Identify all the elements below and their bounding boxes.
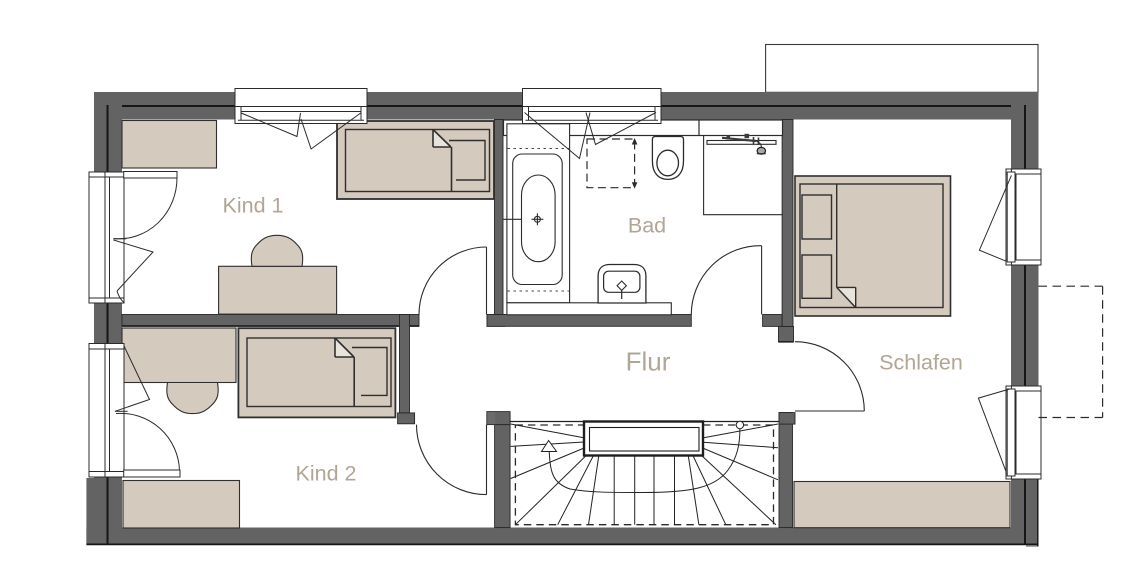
svg-text:Kind 2: Kind 2 bbox=[296, 462, 357, 486]
svg-text:Kind 1: Kind 1 bbox=[223, 194, 284, 218]
svg-text:Flur: Flur bbox=[626, 347, 671, 377]
svg-text:Bad: Bad bbox=[628, 214, 666, 238]
svg-text:Schlafen: Schlafen bbox=[879, 351, 963, 375]
